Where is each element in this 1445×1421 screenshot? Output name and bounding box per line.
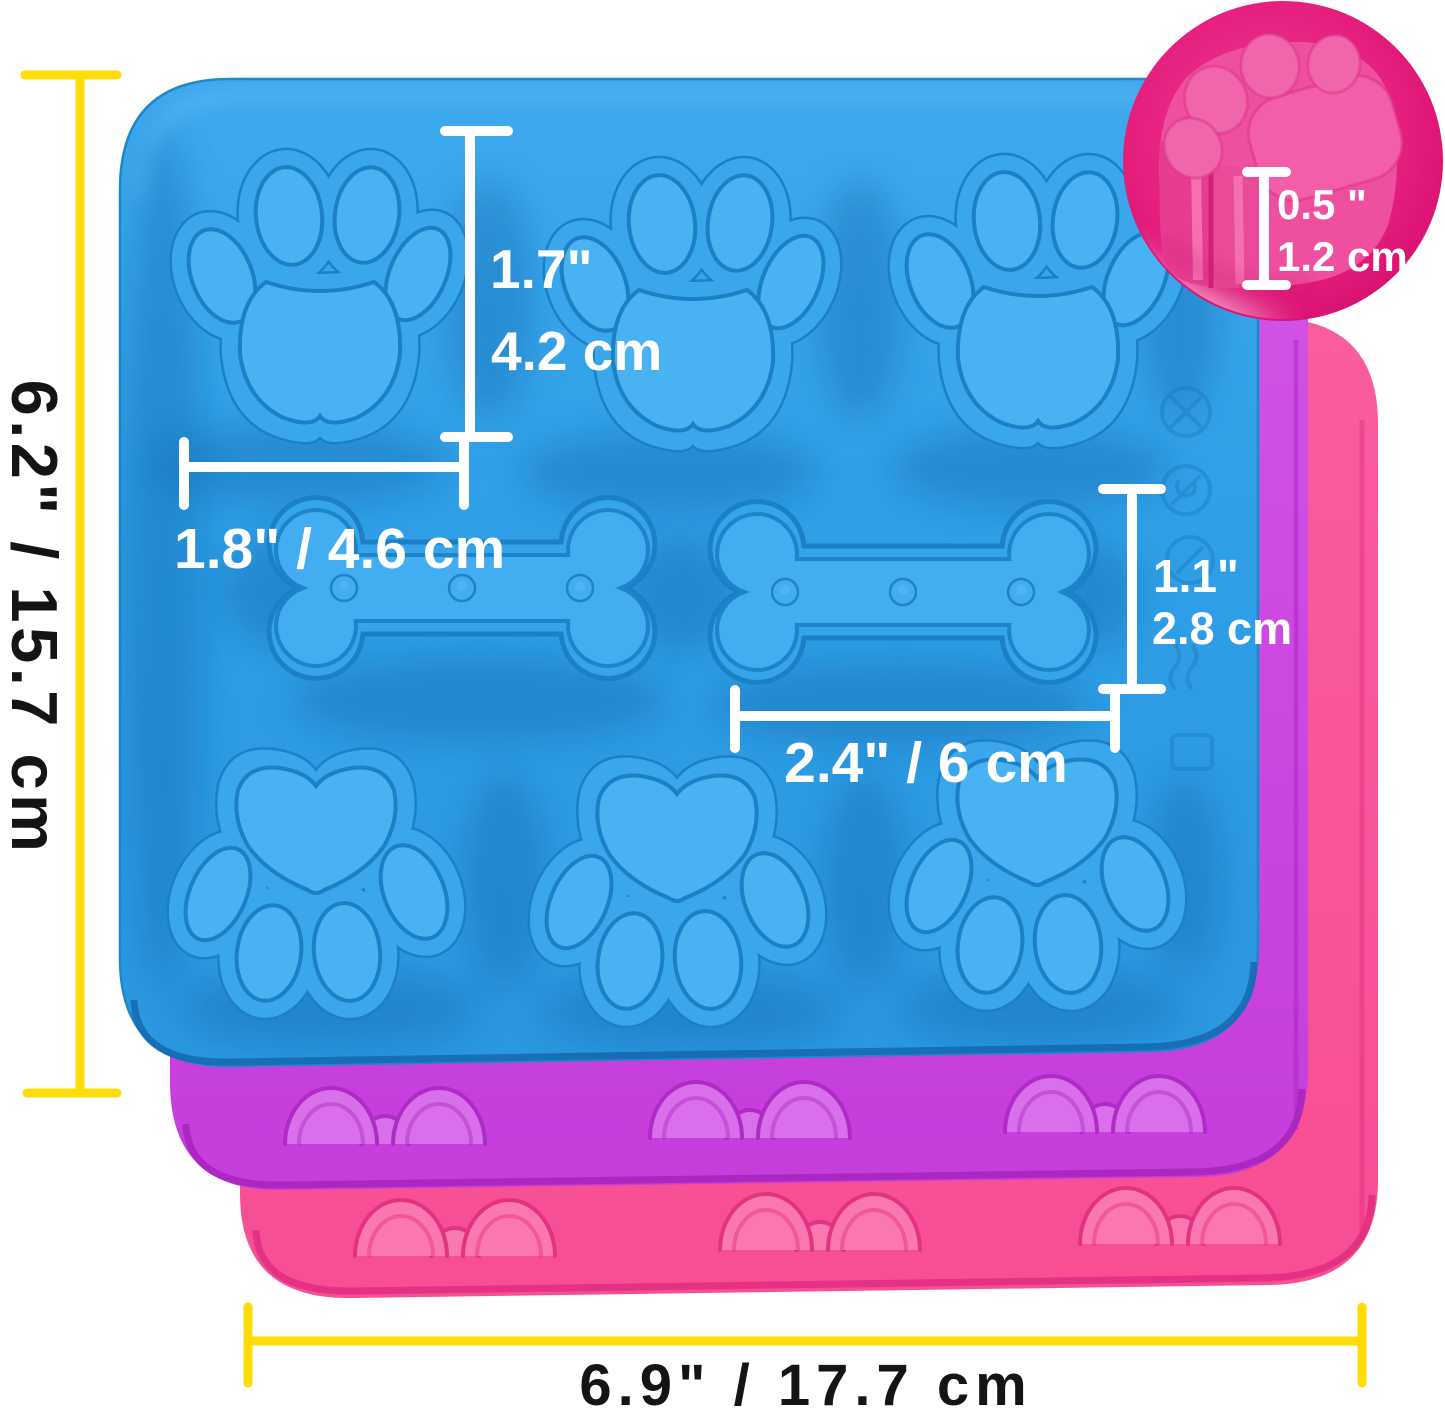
svg-text:1.7": 1.7" (490, 238, 593, 300)
svg-text:1.1": 1.1" (1153, 550, 1239, 602)
svg-text:4.2 cm: 4.2 cm (491, 320, 662, 382)
svg-text:6.2" / 15.7 cm: 6.2" / 15.7 cm (0, 380, 71, 857)
svg-text:2.4" / 6 cm: 2.4" / 6 cm (784, 731, 1068, 795)
svg-text:2.8 cm: 2.8 cm (1152, 603, 1292, 654)
svg-text:0.5 ": 0.5 " (1277, 181, 1367, 228)
svg-text:1.2 cm: 1.2 cm (1277, 233, 1408, 280)
svg-text:6.9" / 17.7 cm: 6.9" / 17.7 cm (579, 1353, 1032, 1418)
svg-text:1.8" / 4.6 cm: 1.8" / 4.6 cm (174, 517, 505, 581)
